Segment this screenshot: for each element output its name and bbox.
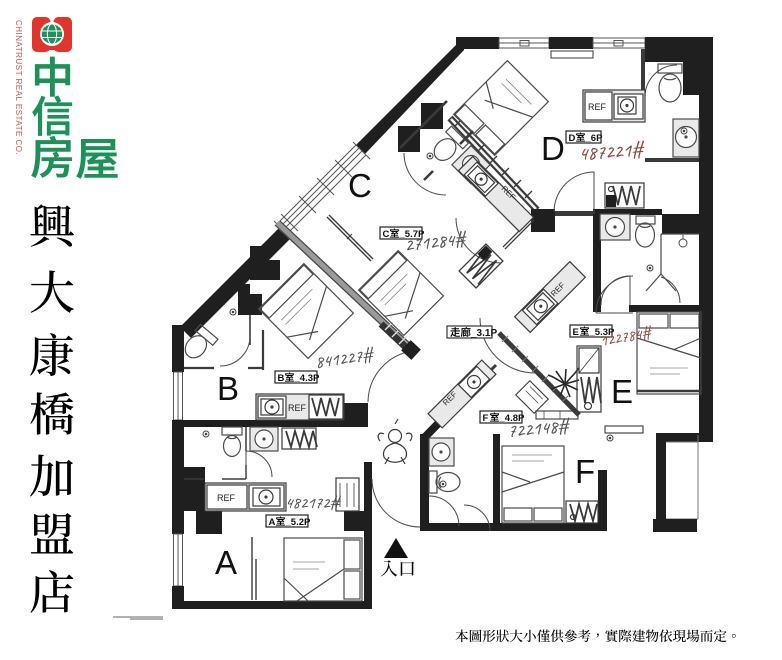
svg-text:A: A bbox=[215, 544, 237, 581]
svg-text:C: C bbox=[348, 167, 372, 204]
svg-text:A: A bbox=[269, 517, 276, 528]
svg-text:E: E bbox=[573, 327, 579, 338]
svg-text:C: C bbox=[383, 229, 390, 240]
svg-text:REF: REF bbox=[217, 493, 236, 503]
svg-text:F: F bbox=[483, 413, 489, 424]
svg-text:_5.7P: _5.7P bbox=[399, 229, 425, 240]
svg-text:_3.1P: _3.1P bbox=[470, 328, 497, 339]
svg-text:D: D bbox=[541, 130, 565, 167]
svg-text:REF: REF bbox=[588, 102, 607, 112]
svg-text:_6P: _6P bbox=[585, 133, 604, 144]
svg-text:_4.3P: _4.3P bbox=[294, 373, 320, 384]
svg-text:CHINATRUST REAL ESTATE CO.: CHINATRUST REAL ESTATE CO. bbox=[14, 20, 23, 155]
svg-text:D: D bbox=[569, 133, 576, 144]
svg-text:_5.2P: _5.2P bbox=[285, 517, 311, 528]
svg-text:E: E bbox=[611, 373, 633, 410]
svg-text:_4.8P: _4.8P bbox=[499, 413, 525, 424]
svg-text:B: B bbox=[278, 373, 285, 384]
svg-text:REF: REF bbox=[288, 403, 307, 413]
svg-text:F: F bbox=[575, 453, 595, 490]
svg-text:B: B bbox=[217, 370, 239, 407]
